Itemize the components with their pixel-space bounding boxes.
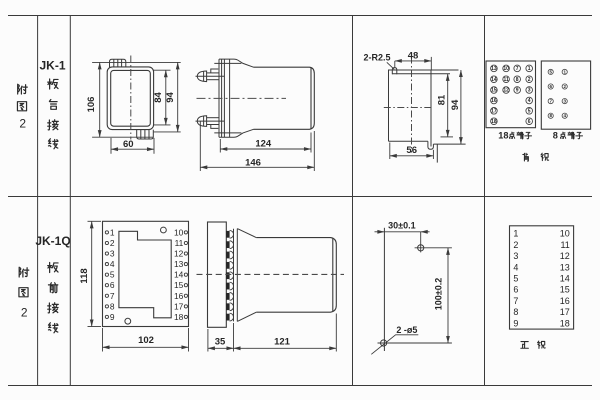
svg-text:94: 94 (165, 92, 176, 103)
svg-text:81: 81 (437, 94, 448, 105)
svg-text:16: 16 (491, 98, 497, 104)
svg-text:6: 6 (528, 119, 531, 125)
svg-text:8: 8 (513, 307, 518, 317)
svg-text:94: 94 (450, 99, 461, 110)
svg-text:15: 15 (174, 280, 184, 290)
svg-text:7: 7 (513, 296, 518, 306)
svg-text:146: 146 (245, 157, 261, 168)
svg-text:10: 10 (503, 66, 509, 72)
svg-text:121: 121 (274, 337, 291, 348)
svg-text:2: 2 (528, 77, 531, 83)
svg-text:7: 7 (516, 66, 519, 72)
svg-text:4: 4 (110, 259, 115, 269)
svg-text:106: 106 (86, 97, 97, 113)
svg-text:35: 35 (215, 337, 226, 348)
svg-text:14: 14 (491, 77, 497, 83)
svg-text:JK-1Q: JK-1Q (35, 234, 70, 248)
svg-text:3: 3 (563, 99, 566, 104)
svg-text:7: 7 (549, 99, 552, 104)
svg-text:18: 18 (560, 318, 570, 328)
svg-text:8: 8 (516, 77, 519, 83)
svg-text:17: 17 (174, 301, 184, 311)
svg-text:10: 10 (174, 227, 184, 237)
svg-text:4: 4 (513, 262, 518, 272)
svg-text:5: 5 (528, 109, 531, 115)
svg-text:100±0.2: 100±0.2 (434, 278, 444, 310)
svg-text:2-R2.5: 2-R2.5 (363, 52, 390, 62)
svg-text:15: 15 (560, 285, 570, 295)
svg-text:3: 3 (110, 249, 115, 259)
svg-text:5: 5 (513, 274, 518, 284)
svg-text:118: 118 (79, 268, 90, 283)
svg-text:4: 4 (528, 98, 531, 104)
svg-text:17: 17 (560, 307, 570, 317)
svg-text:11: 11 (503, 77, 509, 83)
svg-text:18: 18 (498, 131, 508, 141)
svg-text:56: 56 (406, 145, 417, 156)
svg-text:2: 2 (19, 116, 26, 130)
svg-text:16: 16 (560, 296, 570, 306)
svg-text:2: 2 (110, 238, 115, 248)
svg-text:14: 14 (174, 270, 184, 280)
svg-text:1: 1 (528, 66, 531, 72)
svg-text:5: 5 (110, 270, 115, 280)
svg-text:5: 5 (549, 69, 552, 74)
svg-text:12: 12 (174, 249, 184, 259)
svg-text:1: 1 (563, 69, 566, 74)
svg-text:12: 12 (503, 88, 509, 94)
svg-text:18: 18 (174, 312, 184, 322)
svg-text:JK-1: JK-1 (39, 58, 65, 72)
svg-text:102: 102 (138, 335, 154, 346)
svg-text:13: 13 (174, 259, 184, 269)
svg-text:60: 60 (123, 139, 134, 150)
svg-text:9: 9 (516, 88, 519, 94)
svg-text:2: 2 (563, 84, 566, 89)
svg-text:9: 9 (513, 318, 518, 328)
svg-text:124: 124 (255, 138, 272, 149)
svg-text:8: 8 (549, 113, 552, 118)
svg-text:4: 4 (563, 113, 566, 118)
svg-text:6: 6 (549, 84, 552, 89)
svg-text:48: 48 (408, 51, 419, 62)
svg-text:13: 13 (560, 262, 570, 272)
svg-text:12: 12 (560, 251, 570, 261)
svg-text:1: 1 (110, 227, 115, 237)
svg-text:13: 13 (491, 66, 497, 72)
svg-text:14: 14 (560, 274, 570, 284)
svg-text:6: 6 (513, 285, 518, 295)
svg-text:9: 9 (110, 312, 115, 322)
svg-text:18: 18 (491, 119, 497, 125)
svg-text:8: 8 (110, 301, 115, 311)
svg-text:8: 8 (553, 131, 558, 141)
svg-text:30±0.1: 30±0.1 (388, 221, 415, 231)
svg-text:10: 10 (560, 229, 570, 239)
svg-text:3: 3 (528, 88, 531, 94)
svg-text:3: 3 (513, 251, 518, 261)
svg-text:11: 11 (560, 240, 569, 250)
svg-text:2 -ø5: 2 -ø5 (396, 325, 417, 335)
svg-text:6: 6 (110, 280, 115, 290)
svg-text:2: 2 (21, 305, 28, 319)
svg-text:16: 16 (174, 291, 184, 301)
svg-text:84: 84 (153, 92, 164, 103)
svg-text:15: 15 (491, 88, 497, 94)
svg-text:11: 11 (175, 238, 184, 248)
svg-text:17: 17 (491, 109, 497, 115)
svg-text:1: 1 (513, 229, 518, 239)
svg-text:7: 7 (110, 291, 115, 301)
svg-text:2: 2 (513, 240, 518, 250)
